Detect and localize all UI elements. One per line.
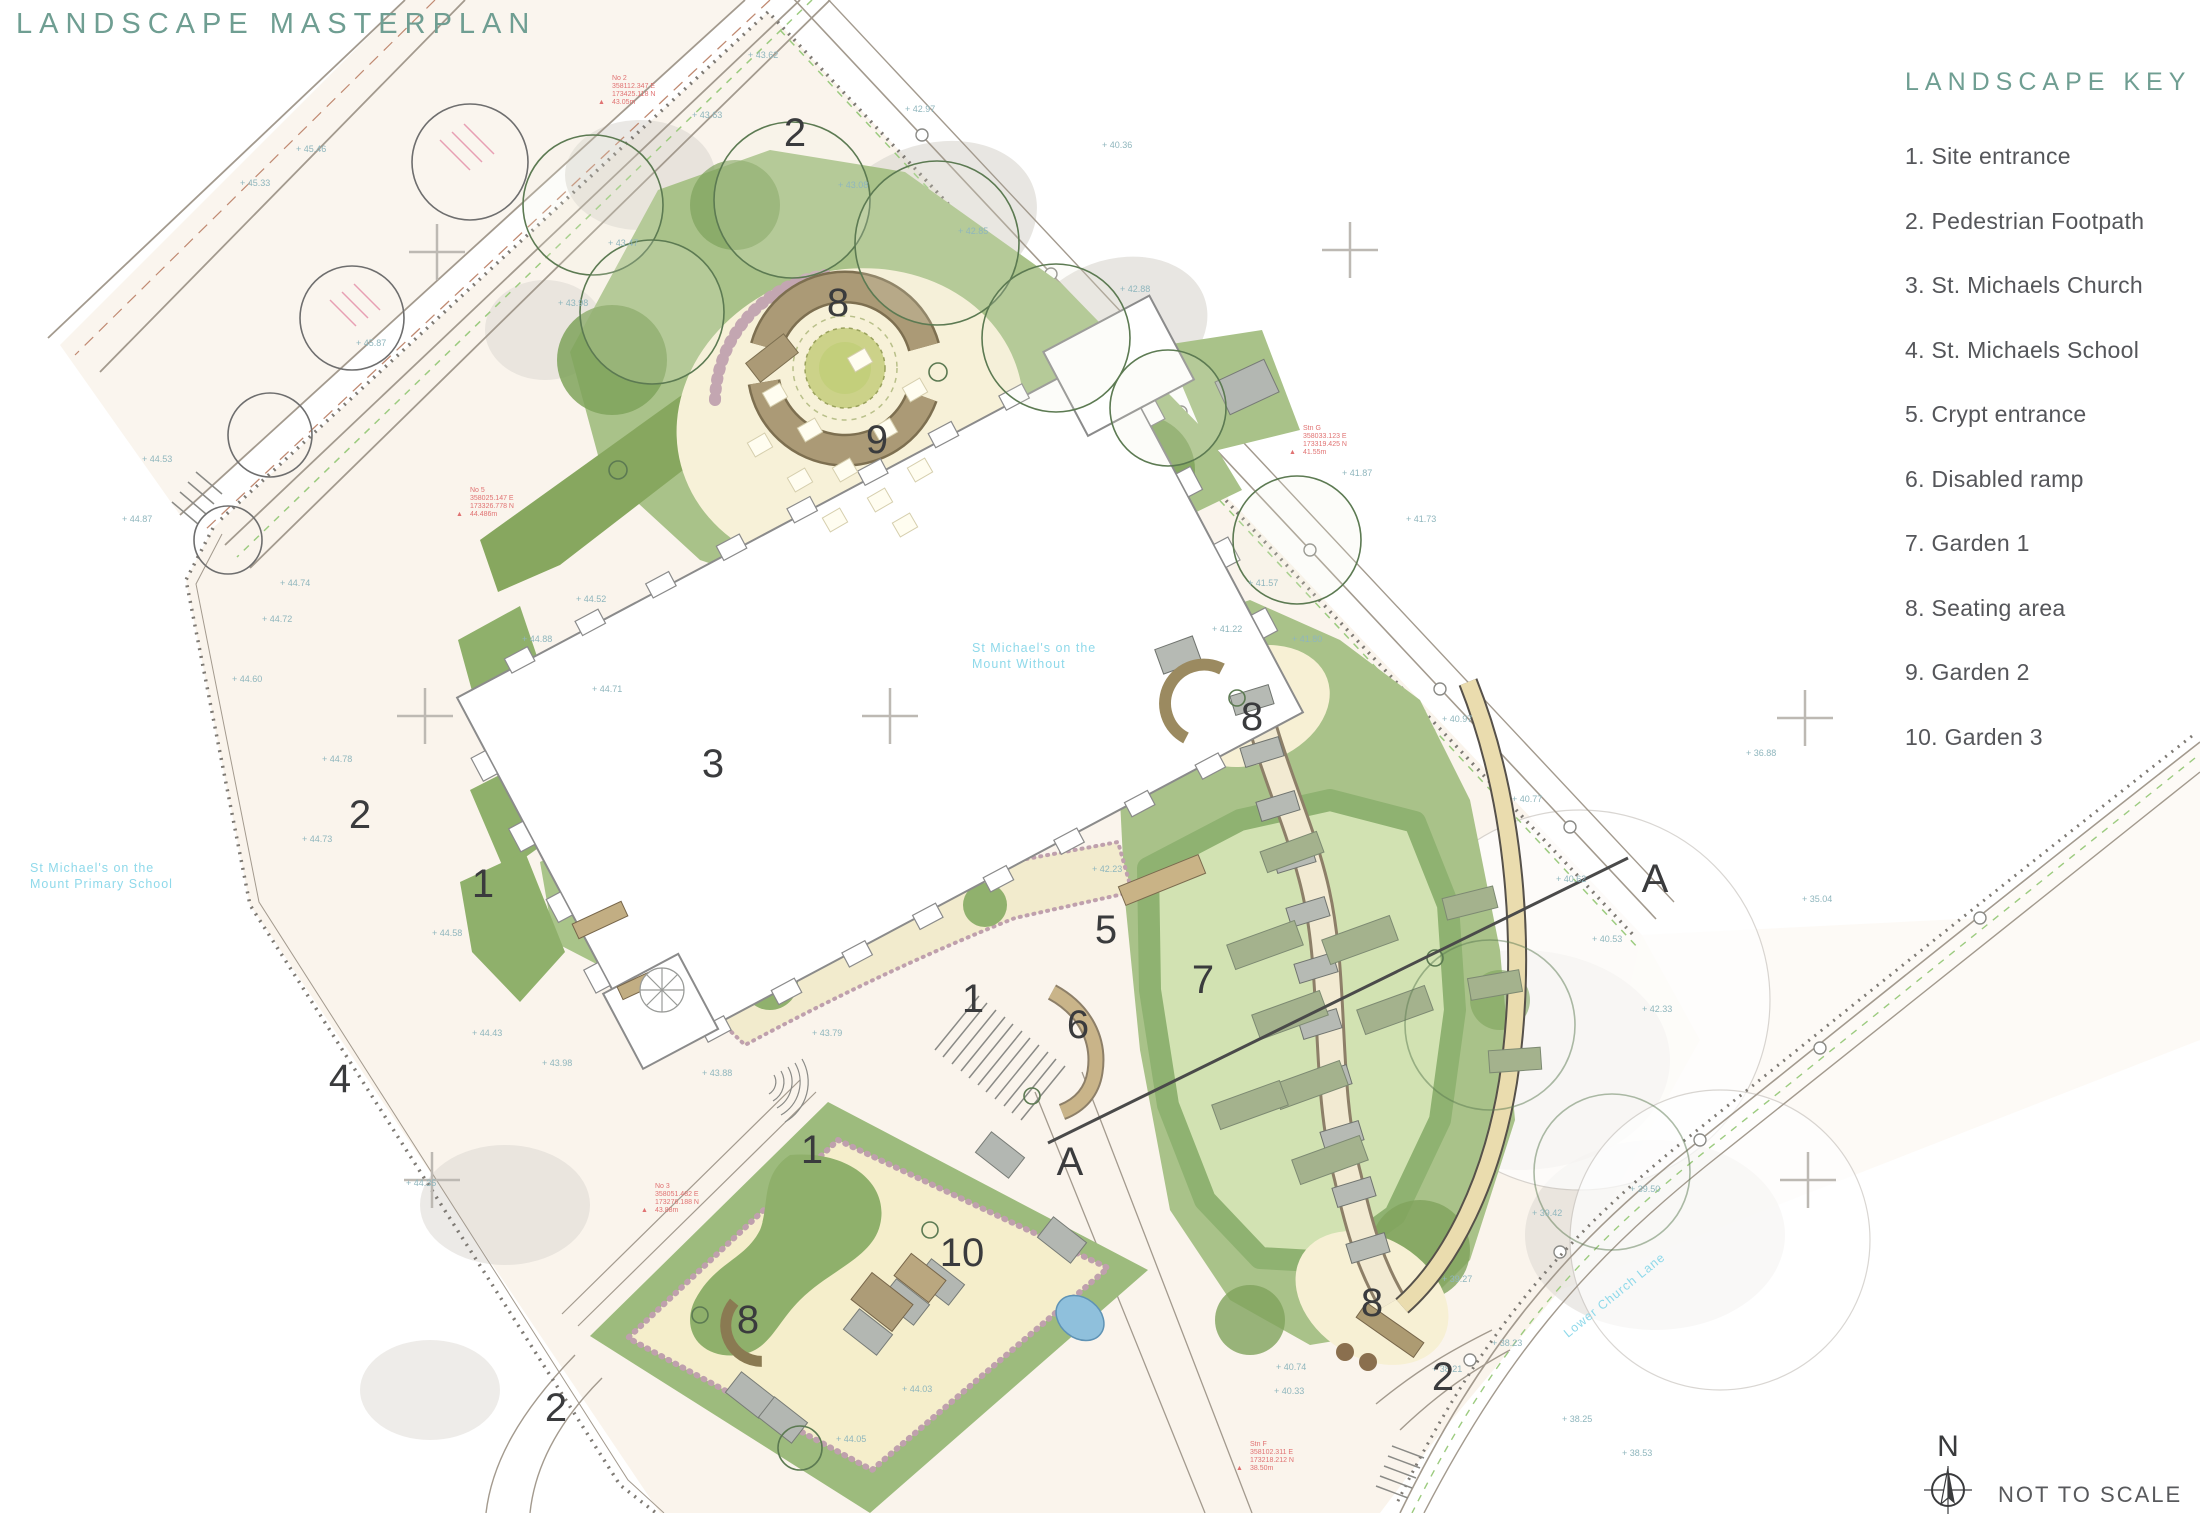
place-text: St Michael's on theMount Primary School — [30, 861, 173, 891]
spot-text: + 38.53 — [1622, 1448, 1652, 1458]
num-label-text: 2 — [784, 111, 806, 155]
spot-text: + 40.74 — [1276, 1362, 1306, 1372]
spot-text: + 43.63 — [692, 110, 722, 120]
key-list: 1. Site entrance2. Pedestrian Footpath3.… — [1905, 143, 2195, 751]
num-label-text: 3 — [702, 742, 724, 786]
spot-text: + 38.25 — [1562, 1414, 1592, 1424]
spot-text: + 43.98 — [542, 1058, 572, 1068]
page-title: LANDSCAPE MASTERPLAN — [16, 8, 536, 41]
compass-icon — [1922, 1464, 1974, 1516]
spot-text: + 44.53 — [142, 454, 172, 464]
survey-text: ▲ — [1289, 449, 1296, 456]
num-label-text: 2 — [1432, 1355, 1454, 1399]
spot-text: + 43.62 — [748, 50, 778, 60]
spot-text: + 40.36 — [1102, 140, 1132, 150]
spot-text: + 43.79 — [812, 1028, 842, 1038]
spot-text: + 43.08 — [838, 180, 868, 190]
spot-text: + 45.33 — [240, 178, 270, 188]
spiral-stair — [640, 968, 684, 1012]
survey-text: ▲ — [598, 99, 605, 106]
spot-text: + 43.88 — [702, 1068, 732, 1078]
spot-text: + 40.53 — [1592, 934, 1622, 944]
spot-text: + 42.97 — [905, 104, 935, 114]
spot-text: + 44.87 — [122, 514, 152, 524]
key-item: 10. Garden 3 — [1905, 724, 2195, 751]
num-label-text: 6 — [1067, 1003, 1089, 1047]
scale-note: NOT TO SCALE — [1998, 1482, 2182, 1508]
survey-text: ▲ — [641, 1207, 648, 1214]
spot-text: + 43.47 — [608, 238, 638, 248]
spot-text: + 44.43 — [472, 1028, 502, 1038]
spot-text: + 44.03 — [902, 1384, 932, 1394]
spot-text: + 42.88 — [1120, 284, 1150, 294]
spot-text: + 41.87 — [1342, 468, 1372, 478]
num-label-text: 8 — [1241, 695, 1263, 739]
num-label-text: 1 — [962, 977, 984, 1021]
num-label-text: 2 — [545, 1386, 567, 1430]
spot-text: + 44.74 — [280, 578, 310, 588]
num-label-text: 1 — [472, 862, 494, 906]
spot-text: + 41.80 — [1292, 634, 1322, 644]
spot-text: + 41.22 — [1212, 624, 1242, 634]
spot-text: + 40.77 — [1512, 794, 1542, 804]
num-label-text: 2 — [349, 793, 371, 837]
survey-text: ▲ — [456, 511, 463, 518]
spot-text: + 44.58 — [432, 928, 462, 938]
num-label-text: 8 — [827, 281, 849, 325]
spot-text: + 40.62 — [1556, 874, 1586, 884]
num-label-text: 10 — [940, 1231, 985, 1275]
spot-text: + 44.60 — [232, 674, 262, 684]
spot-text: + 44.88 — [522, 634, 552, 644]
spot-text: + 45.46 — [296, 144, 326, 154]
spot-text: + 42.23 — [1092, 864, 1122, 874]
sec-label-text: A — [1642, 857, 1669, 901]
spot-text: + 35.04 — [1802, 894, 1832, 904]
key-item: 6. Disabled ramp — [1905, 466, 2195, 493]
spot-text: + 39.27 — [1442, 1274, 1472, 1284]
survey-text: Stn G358033.123 E173319.425 N41.55m — [1303, 425, 1347, 456]
spot-text: + 44.71 — [592, 684, 622, 694]
spot-text: + 44.35 — [406, 1178, 436, 1188]
site-plan-svg: + 43.62+ 43.63+ 42.97+ 40.36+ 43.08+ 42.… — [0, 0, 2200, 1513]
north-arrow: N — [1918, 1432, 1978, 1521]
spot-text: + 44.78 — [322, 754, 352, 764]
spot-text: + 39.42 — [1532, 1208, 1562, 1218]
key-item: 7. Garden 1 — [1905, 530, 2195, 557]
spot-text: + 40.33 — [1274, 1386, 1304, 1396]
spot-text: + 39.50 — [1630, 1184, 1660, 1194]
key-item: 5. Crypt entrance — [1905, 401, 2195, 428]
num-label-text: 8 — [1361, 1281, 1383, 1325]
key-item: 4. St. Michaels School — [1905, 337, 2195, 364]
num-label-text: 8 — [737, 1298, 759, 1342]
key-title: LANDSCAPE KEY — [1905, 68, 2195, 97]
spot-text: + 45.87 — [356, 338, 386, 348]
landscape-key-panel: LANDSCAPE KEY 1. Site entrance2. Pedestr… — [1905, 68, 2195, 788]
num-label-text: 5 — [1095, 908, 1117, 952]
spot-text: + 40.97 — [1442, 714, 1472, 724]
spot-text: + 42.85 — [958, 226, 988, 236]
spot-text: + 44.05 — [836, 1434, 866, 1444]
spot-text: + 38.23 — [1492, 1338, 1522, 1348]
num-label-text: 1 — [801, 1128, 823, 1172]
spot-text: + 44.72 — [262, 614, 292, 624]
num-label-text: 4 — [329, 1057, 351, 1101]
spot-text: + 36.88 — [1746, 748, 1776, 758]
key-item: 1. Site entrance — [1905, 143, 2195, 170]
num-label-text: 7 — [1192, 958, 1214, 1002]
spot-text: + 43.98 — [558, 298, 588, 308]
spot-text: + 44.52 — [576, 594, 606, 604]
survey-text: ▲ — [1236, 1465, 1243, 1472]
spot-text: + 41.57 — [1248, 578, 1278, 588]
spot-text: + 44.73 — [302, 834, 332, 844]
north-label: N — [1918, 1432, 1978, 1462]
key-item: 8. Seating area — [1905, 595, 2195, 622]
sec-label-text: A — [1057, 1140, 1084, 1184]
key-item: 2. Pedestrian Footpath — [1905, 208, 2195, 235]
key-item: 3. St. Michaels Church — [1905, 272, 2195, 299]
spot-text: + 42.33 — [1642, 1004, 1672, 1014]
spot-text: + 41.73 — [1406, 514, 1436, 524]
num-label-text: 9 — [866, 418, 888, 462]
key-item: 9. Garden 2 — [1905, 659, 2195, 686]
